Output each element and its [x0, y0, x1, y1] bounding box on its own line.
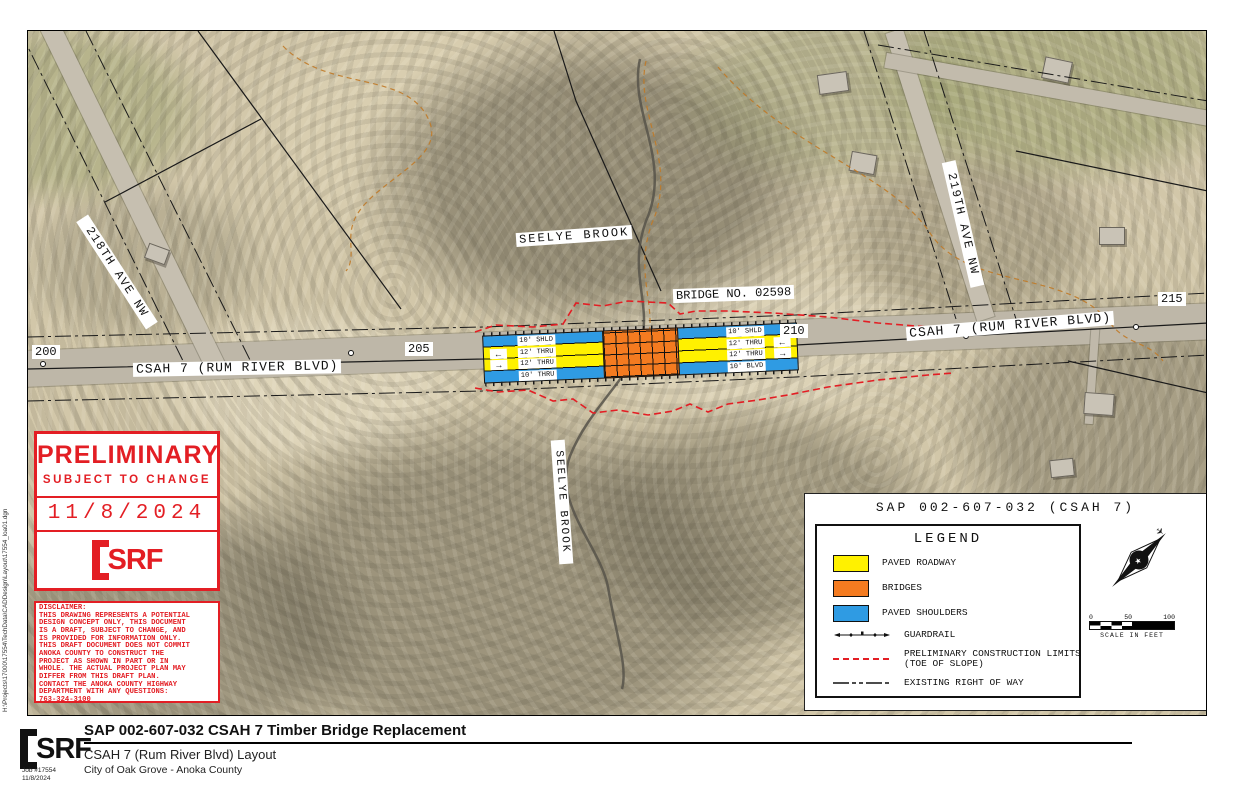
scale-bar-graphic [1089, 621, 1175, 630]
srf-logo: SRF [92, 540, 163, 580]
building [848, 151, 877, 175]
preliminary-subtitle: SUBJECT TO CHANGE [37, 474, 217, 486]
legend-heading: LEGEND [817, 531, 1079, 547]
lane-label: 12' THRU [727, 349, 765, 361]
plan-sheet: H:\Projects\17000\17554\TechData\CADDesi… [0, 0, 1233, 790]
brook-label: SEELYE BROOK [551, 440, 574, 565]
station-label: 205 [405, 342, 433, 356]
srf-logo-text: SRF [108, 544, 163, 577]
preliminary-stamp: PRELIMINARY SUBJECT TO CHANGE 11/8/2024 … [34, 431, 220, 591]
preliminary-logo-row: SRF [37, 532, 217, 588]
bridges-swatch [833, 580, 869, 597]
disclaimer-box: DISCLAIMER: THIS DRAWING REPRESENTS A PO… [34, 601, 220, 703]
paved-roadway-swatch [833, 555, 869, 572]
title-block: SRF Job #17554 11/8/2024 SAP 002-607-032… [0, 717, 1233, 790]
sheet-client: City of Oak Grove - Anoka County [84, 764, 1184, 776]
legend-item-label: EXISTING RIGHT OF WAY [904, 678, 1024, 689]
legend-item: BRIDGES [833, 580, 1079, 597]
bridge-number-label: BRIDGE NO. 02598 [673, 285, 795, 303]
lane-label: 10' SHLD [517, 335, 555, 347]
direction-arrow-east: → [774, 348, 791, 359]
legend-item-label: GUARDRAIL [904, 630, 955, 641]
legend-panel: SAP 002-607-032 (CSAH 7) LEGEND PAVED RO… [804, 493, 1207, 711]
legend-box: LEGEND PAVED ROADWAY BRIDGES PAVED SHOUL… [815, 524, 1081, 698]
job-date: 11/8/2024 [22, 775, 56, 783]
lane-label: 12' THRU [518, 346, 556, 358]
direction-arrow-west: ← [490, 348, 507, 359]
construction-limits-symbol-icon [833, 658, 891, 660]
legend-panel-title: SAP 002-607-032 (CSAH 7) [805, 500, 1206, 515]
legend-item-label: PAVED ROADWAY [882, 558, 956, 569]
building [1049, 458, 1075, 478]
building [817, 71, 849, 95]
scale-caption: SCALE IN FEET [1089, 632, 1175, 639]
srf-logo: SRF [20, 729, 91, 769]
station-label: 215 [1158, 292, 1186, 306]
legend-item-label: BRIDGES [882, 583, 922, 594]
preliminary-header: PRELIMINARY SUBJECT TO CHANGE [37, 434, 217, 498]
legend-item-label: PRELIMINARY CONSTRUCTION LIMITS (TOE OF … [904, 649, 1081, 670]
job-info: Job #17554 11/8/2024 [22, 767, 56, 783]
legend-item: PRELIMINARY CONSTRUCTION LIMITS (TOE OF … [833, 649, 1079, 670]
title-block-text: SAP 002-607-032 CSAH 7 Timber Bridge Rep… [84, 722, 1184, 776]
station-label: 210 [780, 324, 808, 338]
legend-item: GUARDRAIL [833, 630, 1079, 641]
road-218th-ave [41, 30, 226, 372]
sheet-subtitle: CSAH 7 (Rum River Blvd) Layout [84, 747, 1184, 762]
building [1041, 56, 1073, 83]
job-number: Job #17554 [22, 767, 56, 775]
right-of-way-symbol-icon [833, 679, 891, 687]
scale-ticks: 0 50 100 [1089, 614, 1175, 621]
srf-logo-text: SRF [36, 733, 91, 766]
direction-arrow-east: → [490, 360, 507, 371]
north-arrow: ★ ✈ [1097, 518, 1181, 607]
svg-text:✈: ✈ [1152, 523, 1168, 540]
preliminary-title: PRELIMINARY [37, 441, 217, 470]
sheet-title: SAP 002-607-032 CSAH 7 Timber Bridge Rep… [84, 722, 1184, 739]
preliminary-date: 11/8/2024 [37, 498, 217, 532]
building [1083, 392, 1114, 416]
lane-label: 12' THRU [726, 337, 764, 349]
legend-item-label: PAVED SHOULDERS [882, 608, 968, 619]
paved-shoulders-swatch [833, 605, 869, 622]
roadway-typical-strip: 10' SHLD 12' THRU 12' THRU 10' THRU ← → … [482, 322, 799, 383]
brook-label: SEELYE BROOK [516, 225, 633, 247]
bridge-deck [602, 327, 680, 378]
legend-item: PAVED ROADWAY [833, 555, 1079, 572]
station-label: 200 [32, 345, 60, 359]
title-divider [84, 742, 1132, 744]
lane-label: 12' THRU [518, 358, 556, 370]
lane-label: 10' BLVD [727, 360, 765, 372]
lane-label: 10' THRU [519, 369, 557, 381]
legend-item: PAVED SHOULDERS [833, 605, 1079, 622]
legend-item: EXISTING RIGHT OF WAY [833, 678, 1079, 689]
scale-bar: 0 50 100 SCALE IN FEET [1089, 614, 1175, 639]
disclaimer-line: 763-324-3100 [39, 697, 215, 703]
building [1099, 227, 1125, 245]
lane-label: 10' SHLD [726, 326, 764, 338]
guardrail-symbol-icon [833, 630, 891, 640]
filepath-note: H:\Projects\17000\17554\TechData\CADDesi… [2, 372, 9, 712]
srf-bracket-icon [92, 540, 109, 580]
srf-bracket-icon [20, 729, 37, 769]
aerial-map: 10' SHLD 12' THRU 12' THRU 10' THRU ← → … [27, 30, 1207, 716]
